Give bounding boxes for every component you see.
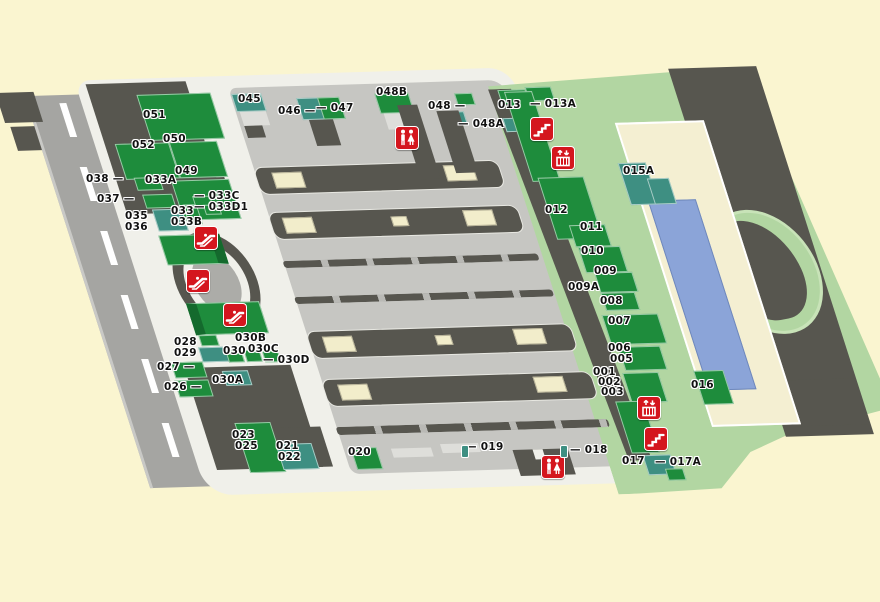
shop-label[interactable]: 030	[223, 346, 246, 357]
shop-label[interactable]: 027 —	[157, 362, 195, 373]
shop-label[interactable]: — 019	[466, 442, 504, 453]
shop-label[interactable]: 036	[125, 222, 148, 233]
shop-label[interactable]: 033	[171, 206, 194, 217]
shop-label[interactable]: 025	[235, 441, 258, 452]
stairs-icon[interactable]	[644, 427, 668, 451]
shop-label[interactable]: 033A	[145, 175, 176, 186]
restroom-icon[interactable]	[395, 126, 419, 150]
shop-label[interactable]: 021	[276, 441, 299, 452]
shop-label[interactable]: 006	[608, 343, 631, 354]
shop-label[interactable]: — 033C	[194, 191, 240, 202]
shop-label[interactable]: 009	[594, 266, 617, 277]
shop-label[interactable]: 038 —	[86, 174, 124, 185]
shop-label[interactable]: — 047	[316, 103, 354, 114]
shop-label[interactable]: 005	[610, 354, 633, 365]
shop-label[interactable]: 048B	[376, 87, 407, 98]
shop-label[interactable]: — 013A	[530, 99, 576, 110]
elevator-icon[interactable]	[551, 146, 575, 170]
shop-label[interactable]: — 018	[570, 445, 608, 456]
station-map: 051052050049038 —037 —033A— 033C— 033D10…	[0, 0, 880, 602]
shop-label[interactable]: 029	[174, 348, 197, 359]
elevator-icon[interactable]	[637, 396, 661, 420]
shop-label[interactable]: 035	[125, 211, 148, 222]
shop-label[interactable]: 007	[608, 316, 631, 327]
shop-label[interactable]: 048 —	[428, 101, 466, 112]
shop-label[interactable]: 046 —	[278, 106, 316, 117]
stairs-icon[interactable]	[530, 117, 554, 141]
shop-label[interactable]: — 048A	[458, 119, 504, 130]
shop-label[interactable]: 049	[175, 166, 198, 177]
shop-label[interactable]: 011	[580, 222, 603, 233]
spot-marker-icon[interactable]	[560, 445, 568, 458]
shop-label[interactable]: 052	[132, 140, 155, 151]
shop-label[interactable]: — 033D1	[194, 202, 248, 213]
shop-label[interactable]: 028	[174, 337, 197, 348]
shop-label[interactable]: 003	[601, 387, 624, 398]
shop-label[interactable]: 045	[238, 94, 261, 105]
shop-label[interactable]: 022	[278, 452, 301, 463]
shop-label[interactable]: 037 —	[97, 194, 135, 205]
shop-label[interactable]: 050	[163, 134, 186, 145]
shop-label[interactable]: 008	[600, 296, 623, 307]
shop-label[interactable]: 030A	[212, 375, 243, 386]
map-annotation-layer: 051052050049038 —037 —033A— 033C— 033D10…	[0, 0, 880, 602]
shop-label[interactable]: 030C	[248, 344, 279, 355]
shop-label[interactable]: — 030D	[263, 355, 310, 366]
shop-label[interactable]: 030B	[235, 333, 266, 344]
spot-marker-icon[interactable]	[461, 445, 469, 458]
shop-label[interactable]: 051	[143, 110, 166, 121]
shop-label[interactable]: 026 —	[164, 382, 202, 393]
shop-label[interactable]: 023	[232, 430, 255, 441]
shop-label[interactable]: 016	[691, 380, 714, 391]
shop-label[interactable]: 017	[622, 456, 645, 467]
escalator-icon[interactable]	[223, 303, 247, 327]
escalator-icon[interactable]	[186, 269, 210, 293]
shop-label[interactable]: — 017A	[655, 457, 701, 468]
escalator-icon[interactable]	[194, 226, 218, 250]
shop-label[interactable]: 010	[581, 246, 604, 257]
restroom-icon[interactable]	[541, 455, 565, 479]
shop-label[interactable]: 013	[498, 100, 521, 111]
shop-label[interactable]: 012	[545, 205, 568, 216]
shop-label[interactable]: 015A	[623, 166, 654, 177]
shop-label[interactable]: 009A	[568, 282, 599, 293]
shop-label[interactable]: 020	[348, 447, 371, 458]
